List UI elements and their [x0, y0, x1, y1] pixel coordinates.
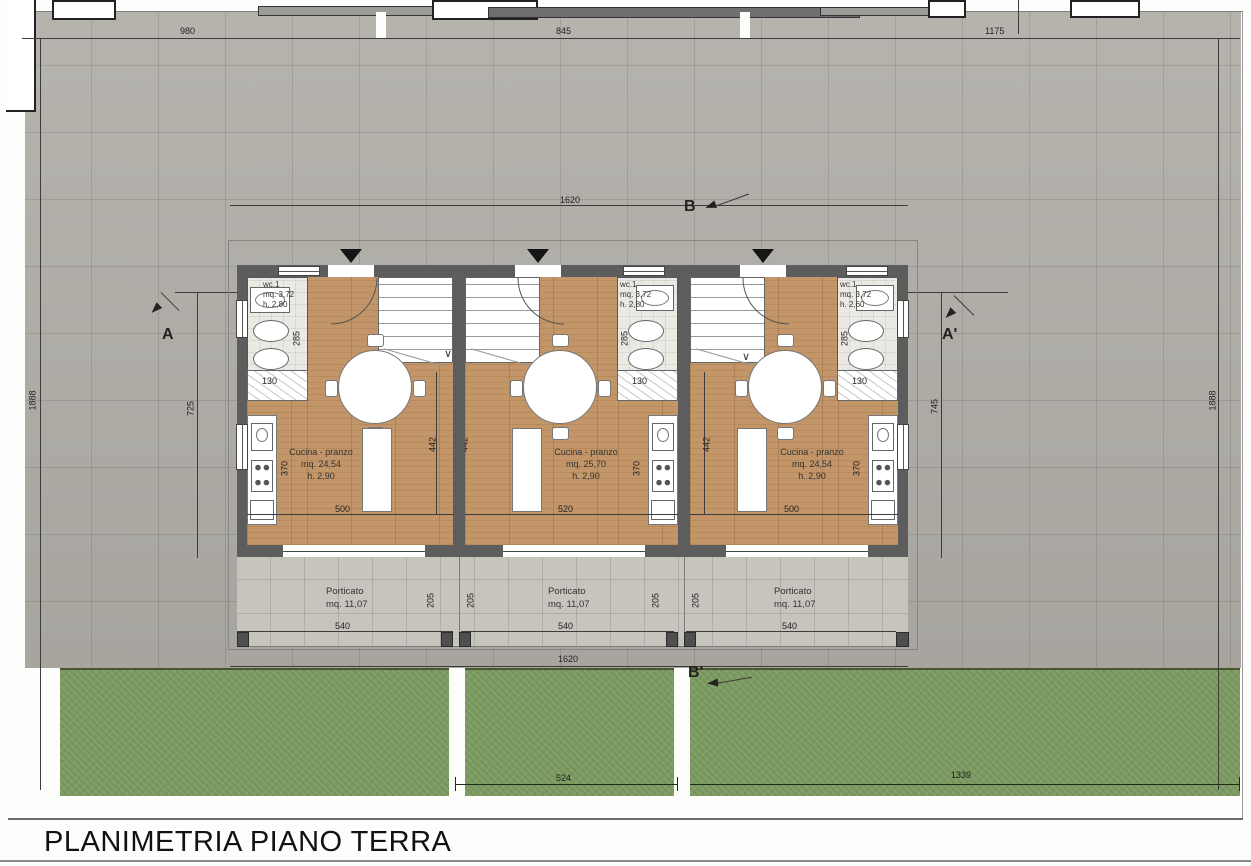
unit3-bidet — [848, 348, 884, 370]
unit2-stove — [652, 460, 674, 492]
dim-line-depth-left — [197, 292, 198, 558]
unit3-stove — [872, 460, 894, 492]
unit1-dim-wc-width: 130 — [262, 377, 277, 386]
portico-column-3 — [459, 632, 471, 647]
unit3-dining-table — [748, 350, 822, 424]
unit1-portico-depth-dim: 205 — [427, 588, 436, 614]
unit3-canopy-mark — [752, 249, 774, 263]
unit1-chair-n — [367, 334, 384, 347]
dim-bottom-mid-tick-r — [677, 777, 678, 791]
dim-bottom-right: 1339 — [951, 771, 971, 780]
unit2-chair-e — [598, 380, 611, 397]
unit1-stairs — [378, 277, 453, 363]
dim-line-depth-right — [941, 292, 942, 558]
unit1-wc-label: wc.1 — [263, 280, 279, 290]
unit1-portico-label: Porticato — [326, 586, 364, 599]
unit1-portico-dim: 540 — [335, 622, 350, 631]
unit2-wc-area: mq. 3,72 — [620, 290, 651, 300]
unit1-dining-table — [338, 350, 412, 424]
dim-building-bottom: 1620 — [558, 655, 578, 664]
portico-column-4 — [666, 632, 678, 647]
right-wall-window-1 — [897, 300, 909, 338]
unit1-appliance — [250, 500, 274, 520]
unit1-entry-door-swing — [330, 277, 378, 325]
unit2-shower — [617, 370, 678, 401]
unit2-portico-label: Porticato — [548, 586, 586, 599]
dim-line-bottom-mid — [455, 784, 677, 785]
unit1-bidet — [253, 348, 289, 370]
dim-left: 1888 — [29, 388, 38, 414]
dim-top-mid: 845 — [556, 27, 571, 36]
portico-column-5 — [684, 632, 696, 647]
section-b-prime-arrowhead — [707, 679, 719, 688]
unit3-dim-width: 500 — [784, 505, 799, 514]
neighbour-block-1 — [52, 0, 116, 20]
unit1-dim-width: 500 — [335, 505, 350, 514]
portico-column-1 — [237, 632, 249, 647]
section-a-prime-line — [908, 292, 1008, 293]
unit2-counter-sink — [652, 423, 674, 451]
unit2-kitchen-label: Cucina - pranzo — [531, 447, 641, 459]
unit1-stairs-direction-arrow: ∨ — [444, 349, 452, 360]
unit1-toilet — [253, 320, 289, 342]
unit3-portico-dim: 540 — [782, 622, 797, 631]
party-wall-1 — [453, 265, 465, 557]
neighbour-corner — [6, 0, 36, 112]
unit1-canopy-mark — [340, 249, 362, 263]
unit1-portico-dim-line — [237, 631, 453, 632]
paving-joint-left — [376, 12, 386, 38]
party-wall-2 — [678, 265, 690, 557]
unit2-bidet — [628, 348, 664, 370]
left-wall-window-2 — [236, 424, 248, 470]
unit3-top-window — [846, 266, 888, 276]
unit1-top-window — [278, 266, 320, 276]
dim-right: 1888 — [1209, 388, 1218, 414]
unit1-portico-area: mq. 11,07 — [326, 599, 368, 612]
unit1-chair-w — [325, 380, 338, 397]
unit2-wc-label: wc.1 — [620, 280, 636, 290]
unit3-glass-door — [726, 545, 868, 557]
dim-line-bottom-right — [690, 784, 1240, 785]
unit1-dim-mid: 442 — [429, 432, 438, 458]
unit2-chair-w — [510, 380, 523, 397]
section-marker-b: B — [684, 198, 696, 216]
unit2-canopy-mark — [527, 249, 549, 263]
dim-depth-left: 725 — [187, 396, 196, 422]
unit3-chair-s — [777, 427, 794, 440]
unit3-wc-area: mq. 3,72 — [840, 290, 871, 300]
unit2-portico-dim: 540 — [558, 622, 573, 631]
neighbour-bar-2 — [488, 7, 860, 18]
unit2-glass-door — [503, 545, 645, 557]
dim-bottom-mid-tick-l — [455, 777, 456, 791]
unit3-counter-sink — [872, 423, 894, 451]
unit2-portico-depth-dim-right: 205 — [652, 588, 661, 614]
unit3-entry-door-opening — [740, 265, 786, 277]
paving-joint-right — [740, 12, 750, 38]
unit1-chair-e — [413, 380, 426, 397]
dim-bottom-right-tick — [1239, 777, 1240, 791]
unit2-kitchen-height: h. 2,90 — [531, 471, 641, 483]
floor-plan-canvas: 980 845 1175 1888 1888 1620 1620 B B' A … — [0, 0, 1251, 866]
unit1-glass-door — [283, 545, 425, 557]
unit2-kitchen-area: mq. 25,70 — [531, 459, 641, 471]
unit1-wc-height: h. 2,80 — [263, 300, 287, 310]
unit3-dim-width-line — [690, 514, 898, 515]
unit3-dim-wc-width: 130 — [852, 377, 867, 386]
unit3-kitchen-label: Cucina - pranzo — [757, 447, 867, 459]
portico-front-edge — [237, 646, 908, 647]
unit3-chair-w — [735, 380, 748, 397]
unit2-dim-depth: 370 — [633, 456, 642, 482]
neighbour-bar-3 — [820, 7, 930, 16]
dim-bottom-mid: 524 — [556, 774, 571, 783]
dim-top-right: 1175 — [985, 27, 1004, 36]
unit3-portico-dim-line — [686, 631, 896, 632]
page-title: PLANIMETRIA PIANO TERRA — [44, 826, 451, 859]
dim-building-top: 1620 — [560, 196, 580, 205]
unit3-wc-label: wc.1 — [840, 280, 856, 290]
unit3-wc-height: h. 2,60 — [840, 300, 864, 310]
unit2-portico-dim-line — [461, 631, 674, 632]
unit2-entry-door-opening — [515, 265, 561, 277]
page-divider-line — [8, 818, 1243, 820]
unit2-chair-s — [552, 427, 569, 440]
unit1-entry-door-opening — [328, 265, 374, 277]
unit3-toilet — [848, 320, 884, 342]
unit2-dining-table — [523, 350, 597, 424]
unit3-appliance — [871, 500, 895, 520]
section-marker-a-prime: A' — [942, 326, 957, 344]
dim-line-building-bottom — [230, 666, 908, 667]
dim-line-top — [22, 38, 1240, 39]
unit1-dim-depth: 370 — [281, 456, 290, 482]
unit3-portico-area: mq. 11,07 — [774, 599, 816, 612]
unit2-chair-n — [552, 334, 569, 347]
unit3-dim-wc-depth: 285 — [841, 326, 850, 352]
unit3-kitchen-height: h. 2,90 — [757, 471, 867, 483]
unit2-dim-width: 520 — [558, 505, 573, 514]
grass-left — [60, 668, 449, 796]
unit2-dim-wc-width: 130 — [632, 377, 647, 386]
unit2-appliance — [651, 500, 675, 520]
section-marker-b-prime: B' — [688, 664, 703, 682]
dim-line-building-top — [230, 205, 908, 206]
page-right-edge — [1242, 12, 1243, 818]
page-bottom-line — [0, 860, 1251, 862]
left-wall-window-1 — [236, 300, 248, 338]
unit2-portico-area: mq. 11,07 — [548, 599, 590, 612]
dim-line-left — [40, 38, 41, 790]
unit1-dim-wc-depth: 285 — [293, 326, 302, 352]
portico-column-6 — [896, 632, 909, 647]
unit3-portico-depth-dim: 205 — [692, 588, 701, 614]
unit2-portico-depth-dim-left: 205 — [467, 588, 476, 614]
unit3-dim-depth: 370 — [853, 456, 862, 482]
unit3-stairs-direction-arrow: ∨ — [742, 352, 750, 363]
unit3-entry-door-swing — [742, 277, 790, 325]
unit3-chair-n — [777, 334, 794, 347]
boundary-tick — [1018, 0, 1019, 34]
unit3-kitchen-area: mq. 24,54 — [757, 459, 867, 471]
right-wall-window-2 — [897, 424, 909, 470]
unit2-toilet — [628, 320, 664, 342]
dim-top-left: 980 — [180, 27, 195, 36]
neighbour-block-4 — [1070, 0, 1140, 18]
unit3-dim-mid: 442 — [703, 432, 712, 458]
unit1-dim-width-line — [247, 514, 453, 515]
unit1-shower — [247, 370, 308, 401]
unit1-wc-area: mq. 3,72 — [263, 290, 294, 300]
neighbour-block-3 — [928, 0, 966, 18]
portico-column-2 — [441, 632, 453, 647]
unit3-portico-label: Porticato — [774, 586, 812, 599]
dim-line-right — [1218, 38, 1219, 790]
unit2-wc-height: h. 2,80 — [620, 300, 644, 310]
unit2-dim-width-line — [465, 514, 678, 515]
unit2-entry-door-swing — [517, 277, 565, 325]
dim-depth-right: 745 — [931, 394, 940, 420]
unit3-shower — [837, 370, 898, 401]
unit2-top-window — [623, 266, 665, 276]
section-marker-a: A — [162, 326, 174, 344]
unit3-chair-e — [823, 380, 836, 397]
unit2-dim-wc-depth: 285 — [621, 326, 630, 352]
